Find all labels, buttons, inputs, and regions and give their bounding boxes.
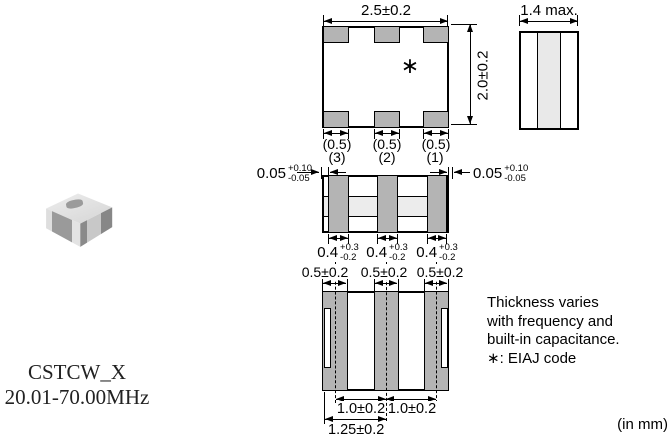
extension-tick (398, 279, 399, 291)
pitch-dimension: 1.0±0.2 (333, 402, 389, 417)
pad-width-dimension-line (324, 133, 348, 134)
terminal-width-dimension: 0.4+0.3-0.2 (412, 243, 462, 262)
extension-tick (448, 279, 449, 291)
terminal-number: (1) (420, 150, 450, 165)
extension-tick (519, 15, 520, 26)
extension-tick (448, 167, 449, 179)
margin-arrow (430, 172, 447, 173)
edge-to-center-dimension: 1.25±0.2 (327, 423, 385, 438)
top-pad (374, 26, 400, 43)
top-pad (423, 26, 449, 43)
extension-tick (447, 15, 448, 26)
note-line: Thickness varies (487, 294, 620, 313)
terminal-1 (427, 175, 447, 233)
extension-tick (347, 279, 348, 291)
terminal-2 (377, 175, 398, 233)
extension-line (451, 124, 477, 125)
terminal-width-dimension-line (329, 238, 348, 239)
top-view-height-dimension: 2.0±0.2 (476, 33, 491, 119)
pitch-dimension-line (336, 399, 386, 400)
datasheet-dimension-drawing: CSTCW_X 20.01-70.00MHz 2.5±0.2 ∗ 2.0±0.2… (0, 0, 672, 442)
extension-tick (323, 15, 324, 26)
bottom-pad-width-line (425, 283, 447, 284)
terminal-number: (3) (322, 150, 352, 165)
component-photo (40, 190, 116, 248)
bottom-pad (374, 111, 400, 128)
margin-arrow (297, 172, 319, 173)
pad-width-dimension-line (424, 133, 448, 134)
eiaj-code-asterisk: ∗ (398, 58, 422, 73)
product-frequency-range-label: 20.01-70.00MHz (0, 386, 154, 409)
terminal-3 (328, 175, 349, 233)
pitch-dimension: 1.0±0.2 (384, 402, 440, 417)
extension-tick (577, 15, 578, 26)
pad-width-dimension-line (375, 133, 399, 134)
margin-arrow (454, 172, 470, 173)
side-view-ceramic-stripe (537, 33, 561, 128)
thickness-dimension-line (520, 21, 578, 22)
top-pad (323, 26, 349, 43)
extension-tick (321, 167, 322, 179)
bottom-pad-width-line (323, 283, 346, 284)
bottom-pad (323, 111, 349, 128)
bottom-pad-width-dimension: 0.5±0.2 (299, 265, 351, 280)
units-note: (in mm) (598, 416, 668, 433)
bottom-pad (423, 111, 449, 128)
bottom-pad-width-dimension: 0.5±0.2 (358, 265, 410, 280)
note-line: with frequency and (487, 313, 620, 332)
castellation-notch (324, 308, 331, 368)
bottom-pad-width-line (375, 283, 397, 284)
terminal-width-dimension: 0.4+0.3-0.2 (362, 243, 412, 262)
bottom-pad-width-dimension: 0.5±0.2 (414, 265, 466, 280)
castellation-notch (441, 308, 448, 368)
bottom-terminal-2 (374, 291, 399, 391)
height-dimension-line (470, 24, 471, 124)
extension-tick (328, 167, 329, 179)
edge-to-center-dimension-line (325, 419, 386, 420)
terminal-width-dimension-line (428, 238, 446, 239)
pitch-dimension-line (386, 399, 436, 400)
note-line: ∗: EIAJ code (487, 350, 620, 369)
product-series-label: CSTCW_X (10, 361, 144, 384)
note-line: built-in capacitance. (487, 331, 620, 350)
width-dimension-line (324, 21, 448, 22)
left-margin-dimension: 0.05+0.10-0.05 (246, 164, 312, 183)
right-margin-dimension: 0.05+0.10-0.05 (473, 164, 528, 183)
terminal-number: (2) (372, 150, 402, 165)
top-view-width-dimension: 2.5±0.2 (330, 3, 442, 18)
extension-tick (452, 167, 453, 179)
margin-arrow (330, 172, 346, 173)
terminal-width-dimension-line (378, 238, 397, 239)
thickness-note: Thickness varies with frequency and buil… (487, 294, 620, 368)
terminal-width-dimension: 0.4+0.3-0.2 (313, 243, 363, 262)
